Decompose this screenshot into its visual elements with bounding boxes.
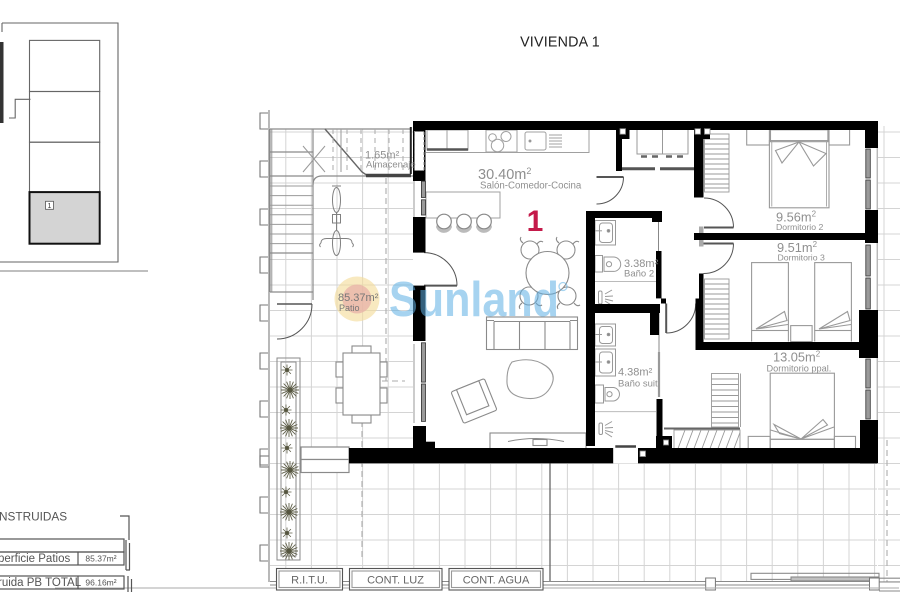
- svg-text:Sunland: Sunland: [389, 273, 559, 327]
- svg-text:Dormitorio 2: Dormitorio 2: [776, 222, 823, 232]
- svg-text:Patio: Patio: [339, 303, 360, 313]
- svg-text:Baño 2: Baño 2: [624, 269, 654, 280]
- svg-text:13.05m2: 13.05m2: [773, 350, 821, 365]
- svg-text:85.37m²: 85.37m²: [85, 554, 116, 564]
- svg-text:Almacenaje: Almacenaje: [366, 159, 416, 170]
- svg-text:Dormitorio 3: Dormitorio 3: [778, 253, 825, 263]
- svg-text:Salón-Comedor-Cocina: Salón-Comedor-Cocina: [480, 181, 582, 192]
- svg-text:R.I.T.U.: R.I.T.U.: [291, 575, 328, 587]
- svg-text:Baño suit: Baño suit: [618, 379, 658, 390]
- svg-text:VIVIENDA 1: VIVIENDA 1: [520, 35, 600, 51]
- svg-text:4.38m²: 4.38m²: [618, 367, 653, 379]
- svg-text:NSTRUIDAS: NSTRUIDAS: [0, 510, 67, 524]
- svg-text:1: 1: [48, 203, 52, 210]
- svg-text:perficie Patios: perficie Patios: [0, 553, 70, 565]
- svg-text:CONT. AGUA: CONT. AGUA: [463, 575, 530, 587]
- svg-text:CONT. LUZ: CONT. LUZ: [367, 575, 424, 587]
- svg-text:ruida PB TOTAL: ruida PB TOTAL: [0, 577, 82, 589]
- svg-text:96.16m²: 96.16m²: [85, 578, 116, 588]
- svg-text:1: 1: [527, 205, 544, 238]
- svg-text:Dormitorio ppal.: Dormitorio ppal.: [767, 363, 832, 373]
